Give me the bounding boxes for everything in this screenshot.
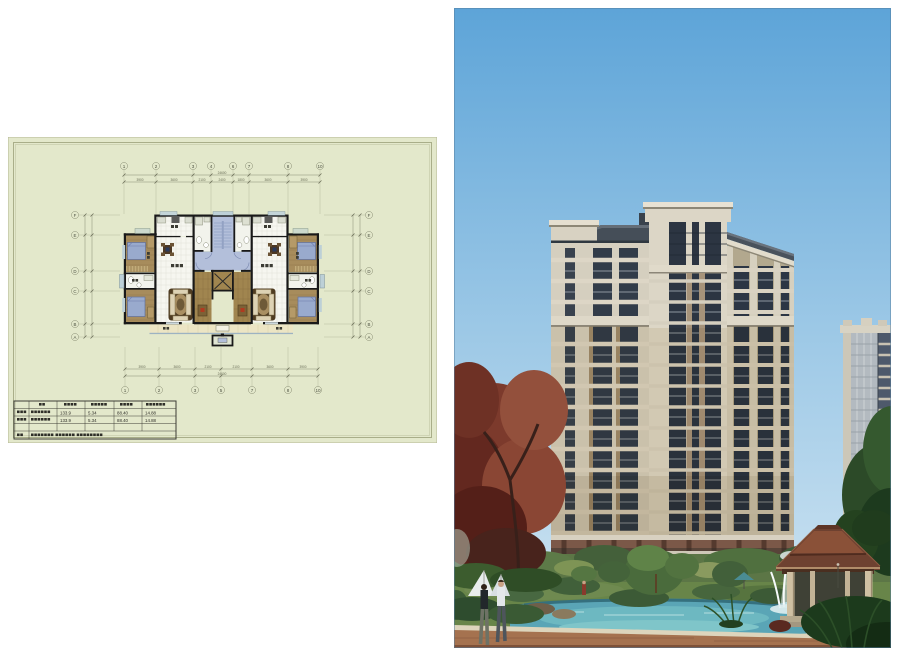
svg-text:7: 7 (248, 164, 251, 169)
svg-text:E: E (368, 233, 371, 238)
svg-text:24600: 24600 (218, 372, 227, 376)
svg-text:3600: 3600 (170, 178, 177, 182)
svg-text:3600: 3600 (264, 178, 271, 182)
svg-text:3: 3 (194, 388, 197, 393)
svg-text:8: 8 (287, 388, 290, 393)
svg-text:4: 4 (210, 164, 213, 169)
svg-text:3900: 3900 (138, 365, 145, 369)
svg-text:2400: 2400 (218, 178, 225, 182)
svg-text:10: 10 (315, 388, 321, 393)
svg-text:14.88: 14.88 (145, 418, 157, 423)
svg-text:1: 1 (124, 388, 127, 393)
svg-text:C: C (73, 289, 76, 294)
svg-text:A: A (368, 335, 371, 340)
svg-text:2100: 2100 (232, 365, 239, 369)
svg-text:8: 8 (287, 164, 290, 169)
svg-text:7: 7 (251, 388, 254, 393)
svg-text:5.34: 5.34 (88, 410, 97, 415)
svg-text:1: 1 (123, 164, 126, 169)
svg-text:3600: 3600 (266, 365, 273, 369)
svg-text:D: D (367, 269, 370, 274)
svg-text:B: B (74, 322, 77, 327)
svg-text:1800: 1800 (237, 178, 244, 182)
svg-text:5.34: 5.34 (88, 418, 97, 423)
svg-text:133.9: 133.9 (60, 418, 72, 423)
svg-text:2: 2 (155, 164, 158, 169)
svg-text:D: D (73, 269, 76, 274)
svg-text:F: F (74, 213, 77, 218)
svg-text:B: B (368, 322, 371, 327)
svg-text:2: 2 (158, 388, 161, 393)
svg-text:3900: 3900 (136, 178, 143, 182)
svg-text:A: A (74, 335, 77, 340)
svg-text:2100: 2100 (198, 178, 205, 182)
svg-text:10: 10 (317, 164, 323, 169)
svg-text:3900: 3900 (300, 178, 307, 182)
svg-text:5: 5 (220, 388, 223, 393)
svg-text:F: F (368, 213, 371, 218)
svg-text:133.9: 133.9 (60, 410, 72, 415)
svg-text:24600: 24600 (218, 171, 227, 175)
svg-text:14.88: 14.88 (145, 410, 157, 415)
svg-text:E: E (74, 233, 77, 238)
svg-text:6: 6 (232, 164, 235, 169)
svg-text:88.40: 88.40 (117, 410, 129, 415)
svg-text:3900: 3900 (299, 365, 306, 369)
svg-text:2100: 2100 (204, 365, 211, 369)
svg-text:C: C (367, 289, 370, 294)
svg-text:3: 3 (192, 164, 195, 169)
svg-text:88.40: 88.40 (117, 418, 129, 423)
svg-text:3600: 3600 (173, 365, 180, 369)
